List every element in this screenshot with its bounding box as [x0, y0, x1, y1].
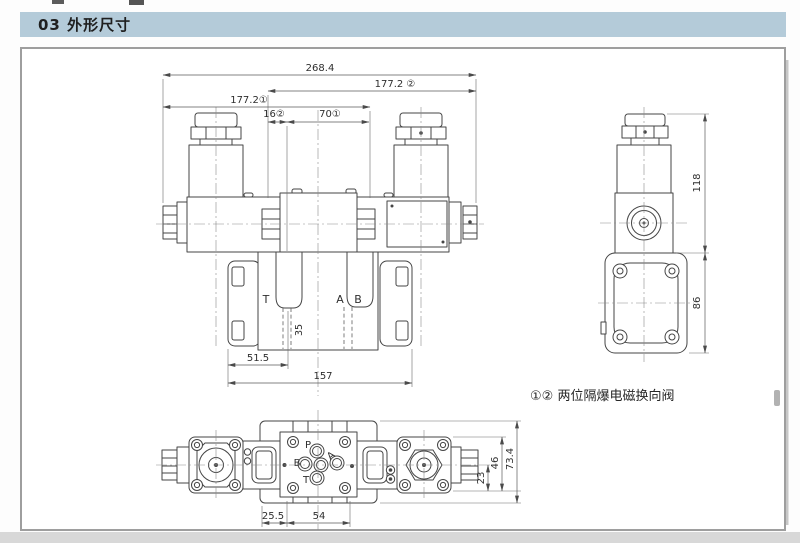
catalog-page: T A B 35 268.4 177.2 ②	[0, 0, 800, 543]
page-bottom-strip	[0, 532, 800, 543]
section-header-bar: 03 外形尺寸	[20, 12, 786, 37]
drawing-note: ①② 两位隔爆电磁换向阀	[530, 388, 674, 404]
scan-artifact	[52, 0, 64, 4]
dim-label-54: 54	[313, 511, 326, 522]
technical-drawing: T A B 35 268.4 177.2 ②	[0, 0, 800, 543]
dim-label-35: 35	[294, 324, 305, 336]
dim-label-515: 51.5	[247, 353, 269, 364]
port-label-a: A	[336, 293, 344, 306]
dim-label-16: 16②	[263, 109, 285, 120]
dim-label-118: 118	[692, 173, 703, 192]
scan-edge-shadow	[786, 60, 789, 525]
section-title: 03 外形尺寸	[38, 14, 131, 35]
dim-label-157: 157	[313, 371, 332, 382]
port-label-t: T	[262, 293, 270, 306]
port-label-b: B	[354, 293, 362, 306]
dim-label-70: 70①	[319, 109, 341, 120]
dim-label-overall: 268.4	[306, 63, 335, 74]
dim-label-46: 46	[490, 457, 501, 470]
scan-artifact	[774, 390, 780, 406]
dim-label-23: 23	[476, 472, 487, 485]
dim-label-255: 25.5	[262, 511, 284, 522]
port-label-b: B	[294, 458, 301, 469]
dim-label-86: 86	[692, 297, 703, 310]
dim-label-734: 73.4	[505, 448, 516, 470]
dim-label-width2: 177.2 ②	[375, 79, 416, 90]
bottom-valve-block: P B A T	[280, 432, 357, 497]
port-label-t: T	[302, 475, 310, 486]
subplate: T A B 35	[228, 252, 412, 350]
valve-body	[163, 189, 477, 252]
port-label-p: P	[305, 440, 311, 451]
scan-artifact	[129, 0, 144, 5]
dim-label-width1: 177.2①	[230, 95, 268, 106]
